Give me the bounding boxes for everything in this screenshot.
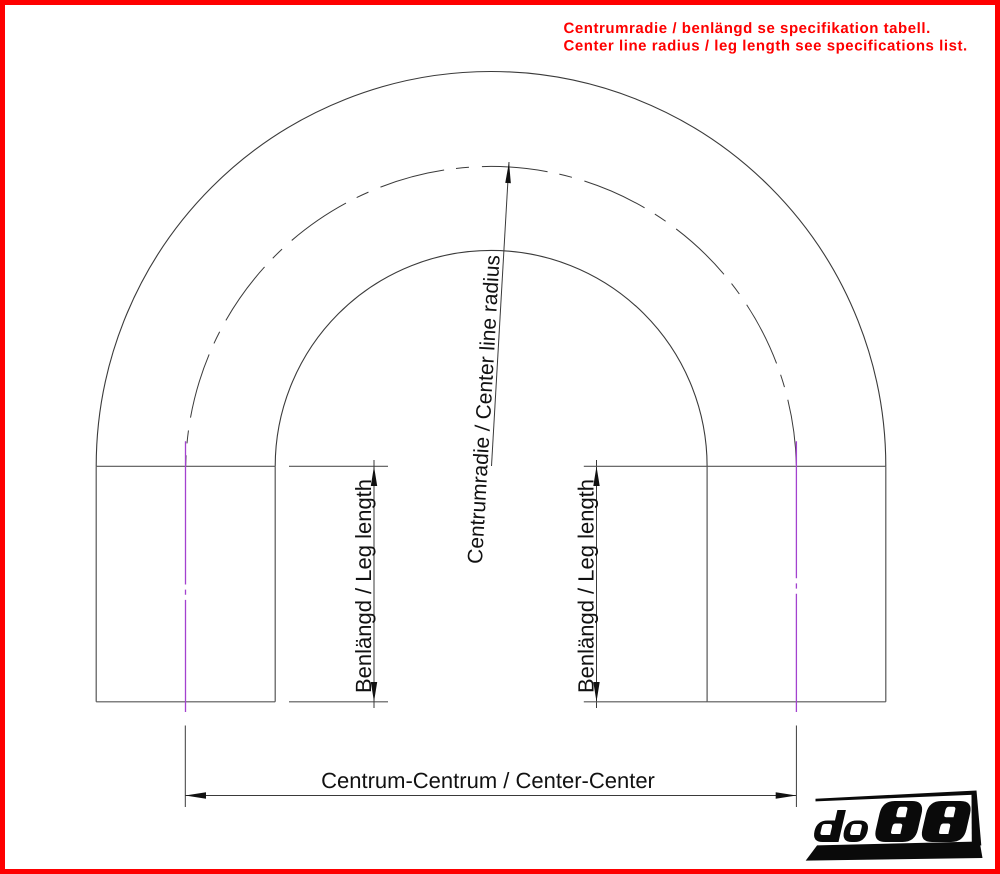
svg-text:Benlängd / Leg length: Benlängd / Leg length <box>351 479 376 693</box>
svg-text:Centrumradie / benlängd se spe: Centrumradie / benlängd se specifikation… <box>564 20 931 37</box>
svg-text:Benlängd / Leg length: Benlängd / Leg length <box>574 479 599 693</box>
svg-text:Center line radius / leg lengt: Center line radius / leg length see spec… <box>564 38 968 55</box>
svg-text:Centrum-Centrum / Center-Cente: Centrum-Centrum / Center-Center <box>321 768 655 793</box>
